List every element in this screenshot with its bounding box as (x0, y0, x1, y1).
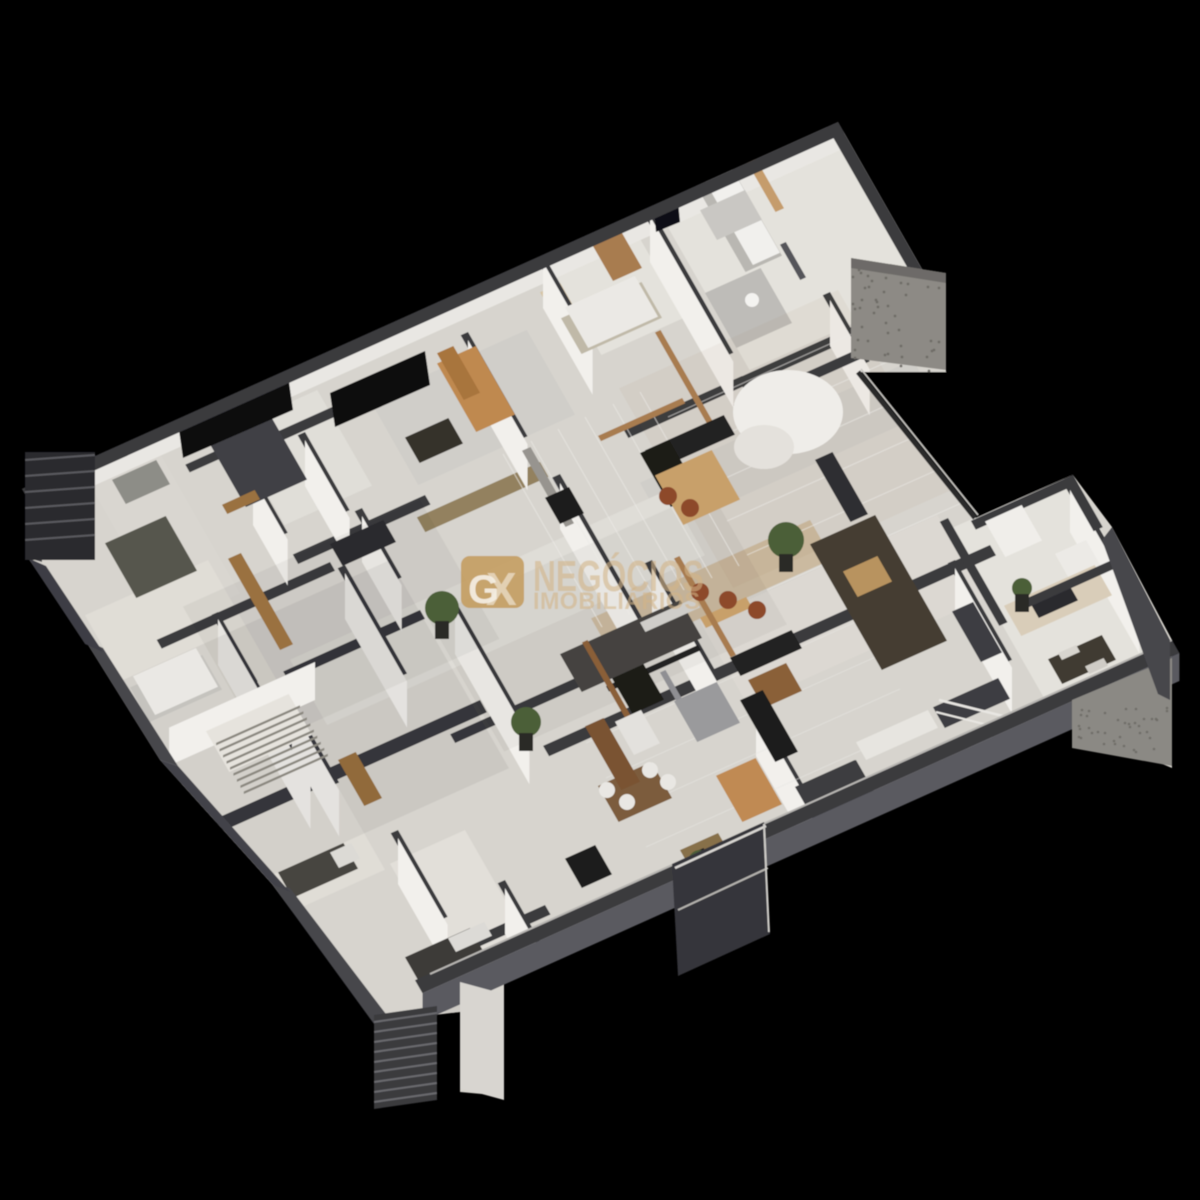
svg-text:X: X (486, 563, 517, 615)
svg-text:IMOBILIÁRIOS: IMOBILIÁRIOS (533, 587, 700, 615)
